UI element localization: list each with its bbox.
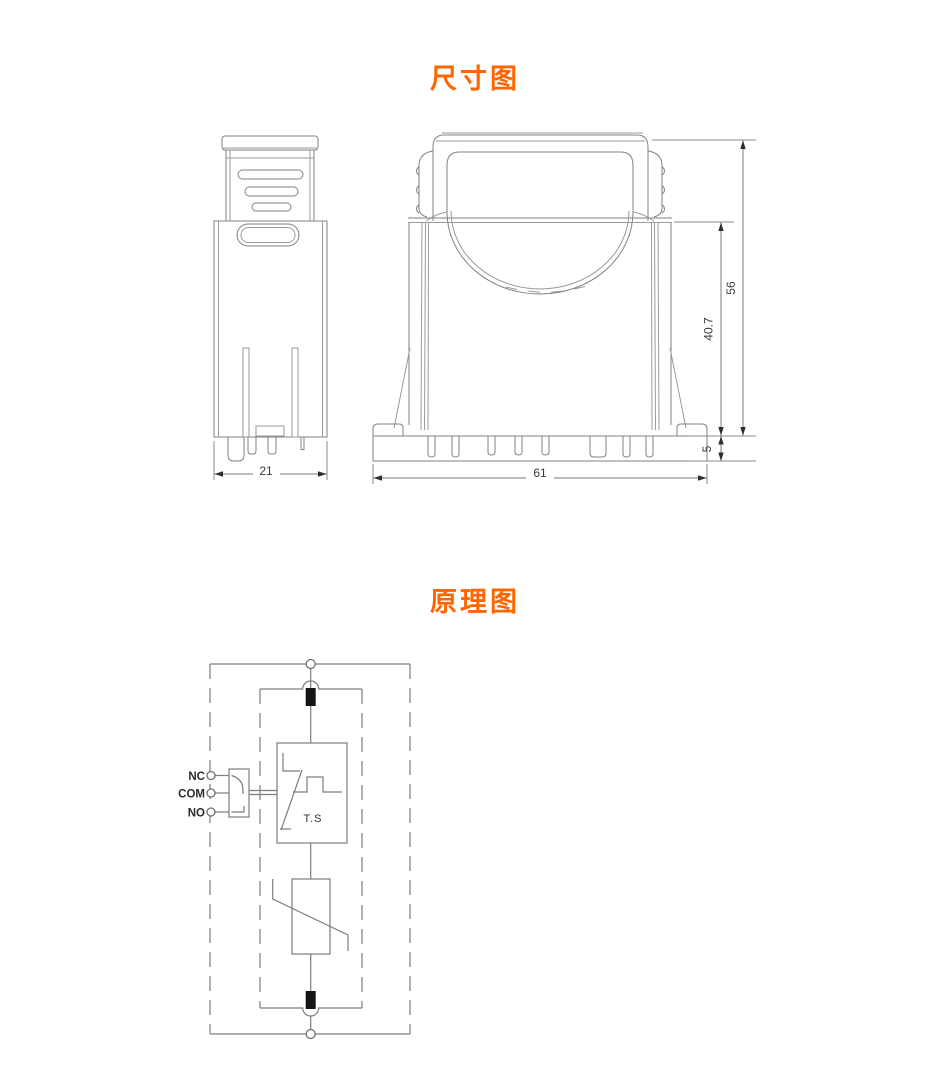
bottom-pin	[228, 437, 244, 461]
varistor-symbol	[273, 879, 348, 954]
bottom-pin	[268, 437, 276, 454]
terminal-bottom	[306, 1030, 315, 1039]
side-base-housing	[214, 221, 327, 437]
vent-slot	[245, 187, 298, 196]
dimension-total-height: 56	[652, 140, 756, 436]
connector-pins	[428, 436, 653, 457]
dim-label-40-7: 40.7	[702, 317, 716, 341]
plug-blade-bottom	[306, 991, 316, 1009]
right-latch	[648, 151, 664, 217]
terminal-label-nc: NC	[188, 771, 205, 783]
inner-pin	[292, 348, 298, 437]
document-page: 尺寸图	[0, 0, 950, 1068]
bottom-pin	[248, 437, 256, 454]
dimension-front-width: 61	[373, 464, 707, 484]
side-module-body	[226, 150, 314, 221]
vent-slot	[252, 203, 291, 211]
dimension-base-height: 5	[690, 436, 756, 461]
front-face-plate	[447, 152, 633, 212]
dim-label-21: 21	[259, 464, 273, 478]
left-foot	[373, 424, 403, 436]
base-walls	[409, 223, 671, 431]
contact-blade	[232, 776, 244, 795]
vent-slot	[238, 170, 303, 179]
disconnect-blade	[281, 770, 302, 830]
terminal-no	[207, 808, 215, 816]
dish-curve	[447, 212, 633, 294]
socket-arc-bottom	[260, 1008, 362, 1016]
front-module-outline	[433, 135, 648, 221]
no-contact-hook	[232, 806, 245, 812]
dim-label-5: 5	[700, 445, 714, 452]
dimension-diagram: 21	[0, 0, 950, 560]
thermal-switch-label: T.S	[304, 813, 323, 825]
bottom-pin	[301, 437, 304, 450]
dim-label-61: 61	[533, 466, 547, 480]
right-foot	[677, 424, 707, 436]
schematic-diagram: T.S NC COM NO	[0, 620, 950, 1068]
schematic-title: 原理图	[0, 580, 950, 619]
terminal-label-no: NO	[188, 808, 205, 820]
dimension-body-height: 40.7	[674, 222, 734, 436]
plug-blade-top	[306, 688, 316, 706]
thermal-disconnect-box: T.S	[277, 743, 347, 843]
terminal-nc	[207, 772, 215, 780]
terminal-com	[207, 789, 215, 797]
outer-enclosure	[210, 664, 410, 1034]
side-view: 21	[214, 136, 327, 480]
inner-pin	[243, 348, 249, 437]
dim-label-56: 56	[724, 281, 738, 295]
left-latch	[417, 151, 433, 217]
telesignal-contact: NC COM NO	[178, 769, 277, 820]
main-circuit-path	[306, 669, 316, 1030]
pulse-symbol	[293, 777, 342, 792]
terminal-label-com: COM	[178, 789, 205, 801]
bottom-plate	[373, 436, 707, 461]
front-view: 61 56 40.7	[373, 133, 756, 484]
terminal-top	[306, 660, 315, 669]
